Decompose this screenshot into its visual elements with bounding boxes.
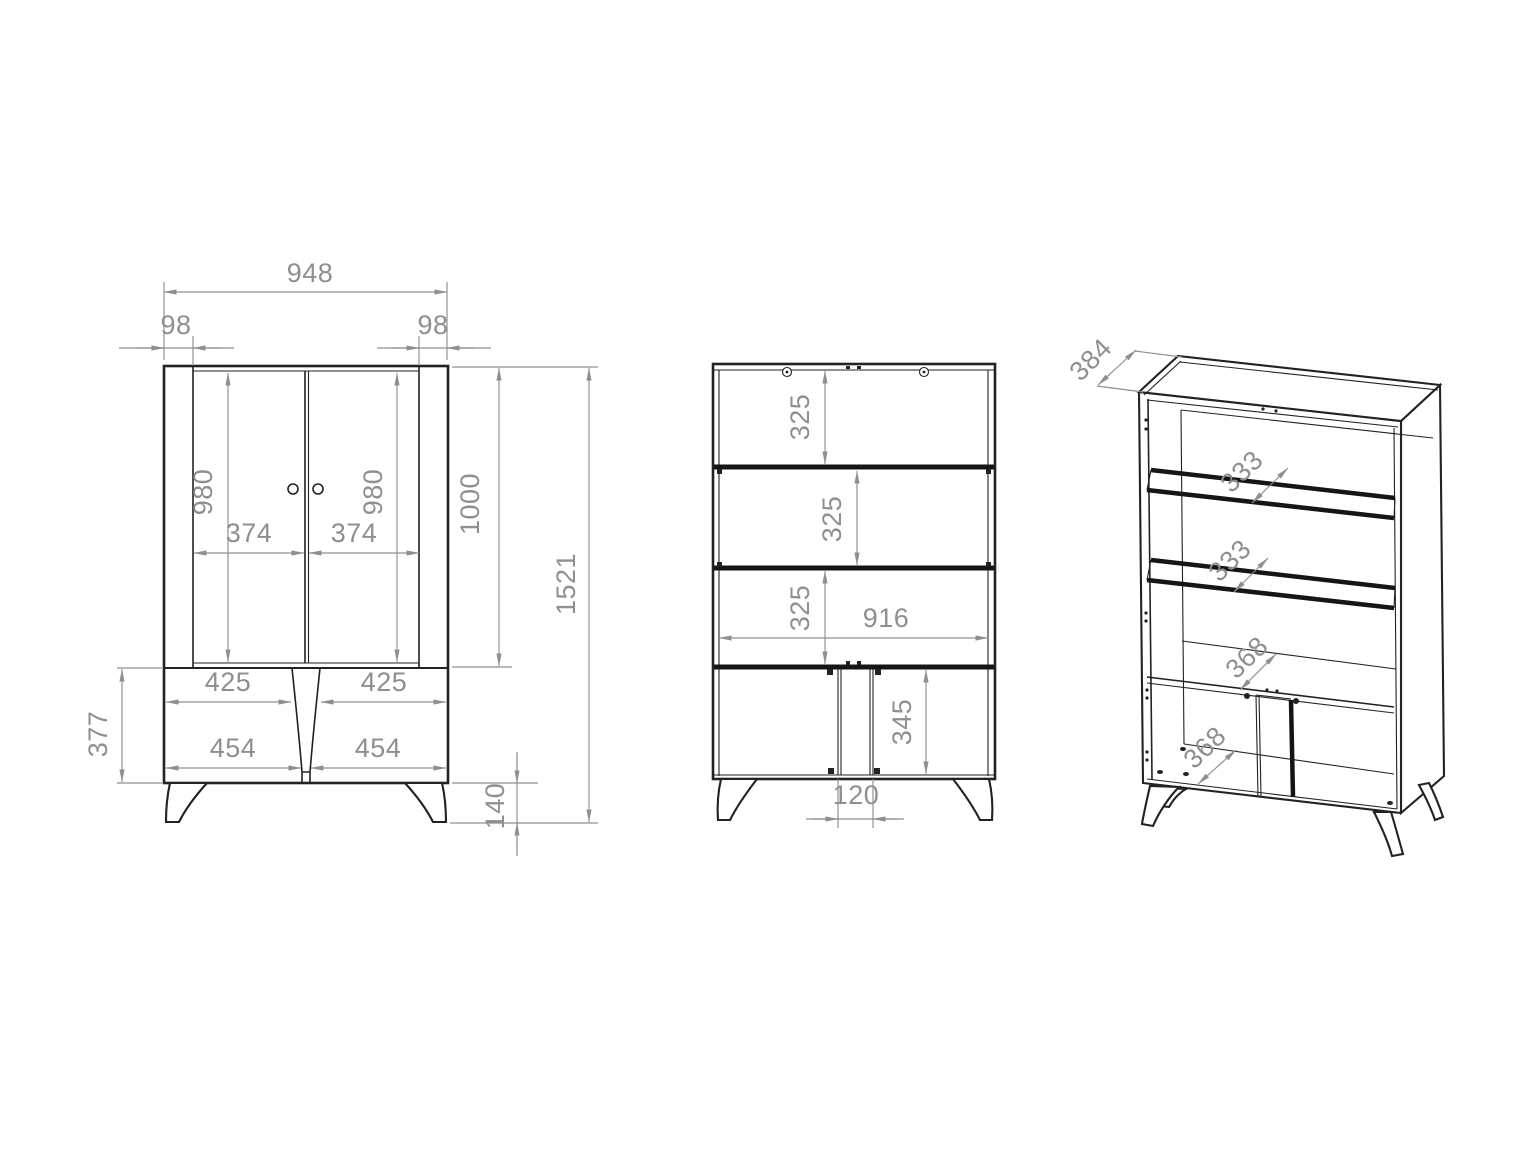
dim-label-right-shelf-width: 425 — [361, 667, 408, 697]
hinge-mark — [828, 768, 834, 774]
technical-drawing-canvas: 948 98 98 980 980 374 374 1000 1521 425 … — [0, 0, 1536, 1152]
dim-label-left-shelf-width: 425 — [205, 667, 252, 697]
dim-label-right-door-width: 374 — [331, 518, 378, 548]
dim-label-right-door-height: 980 — [358, 469, 388, 516]
dim-label-leg-height: 140 — [480, 783, 510, 830]
fitting-mark — [846, 366, 850, 369]
hinge-mark — [827, 669, 833, 675]
dim-label-center-post-width: 120 — [833, 780, 880, 810]
left-door-handle — [288, 484, 298, 494]
hinge-mark — [875, 669, 881, 675]
isometric-view: 384 333 333 368 368 — [1064, 333, 1444, 856]
shelf-pin-mark — [986, 562, 991, 567]
dim-label-interior-width: 916 — [863, 603, 910, 633]
technical-drawing-page: 948 98 98 980 980 374 374 1000 1521 425 … — [0, 0, 1536, 1152]
shelf-pin-mark — [717, 562, 722, 567]
dim-label-left-door-width: 374 — [226, 518, 273, 548]
shelf-pin-mark — [986, 469, 991, 474]
hinge-mark — [874, 768, 880, 774]
dim-label-left-side: 98 — [160, 310, 191, 340]
dim-label-top-depth: 384 — [1064, 333, 1118, 387]
interior-right-leg — [953, 779, 992, 820]
dim-label-base-height: 377 — [83, 711, 113, 758]
interior-left-leg — [718, 779, 757, 820]
camlock-symbol-right — [920, 368, 929, 377]
dim-label-upper-height: 1000 — [455, 473, 485, 535]
dim-label-left-base-width: 454 — [210, 733, 257, 763]
camlock-symbol-left — [783, 368, 792, 377]
iso-front-right-leg — [1374, 812, 1403, 856]
dim-label-left-door-height: 980 — [188, 469, 218, 516]
front-right-leg — [405, 783, 446, 822]
dim-label-total-height: 1521 — [551, 553, 581, 615]
fitting-mark — [857, 661, 861, 665]
iso-back-right-leg — [1419, 783, 1443, 820]
front-left-leg — [166, 783, 207, 822]
shelf-pin-mark — [717, 469, 722, 474]
interior-view: 325 325 325 916 345 120 — [713, 364, 995, 828]
iso-right-side-face — [1401, 385, 1444, 813]
dim-label-right-side: 98 — [417, 310, 448, 340]
dim-label-base-interior-height: 345 — [887, 699, 917, 746]
iso-front-left-leg — [1142, 786, 1179, 826]
dim-label-right-base-width: 454 — [355, 733, 402, 763]
front-view: 948 98 98 980 980 374 374 1000 1521 425 … — [83, 258, 598, 856]
dim-label-shelf-gap-top: 325 — [785, 394, 815, 441]
fitting-mark — [846, 661, 850, 665]
fitting-mark — [857, 366, 861, 369]
right-door-handle — [313, 484, 323, 494]
interior-carcass-outline — [713, 364, 995, 779]
dim-label-total-width: 948 — [287, 258, 334, 288]
dim-label-shelf-gap-bottom: 325 — [785, 585, 815, 632]
front-carcass-outline — [164, 366, 448, 783]
dim-label-shelf-gap-middle: 325 — [817, 496, 847, 543]
